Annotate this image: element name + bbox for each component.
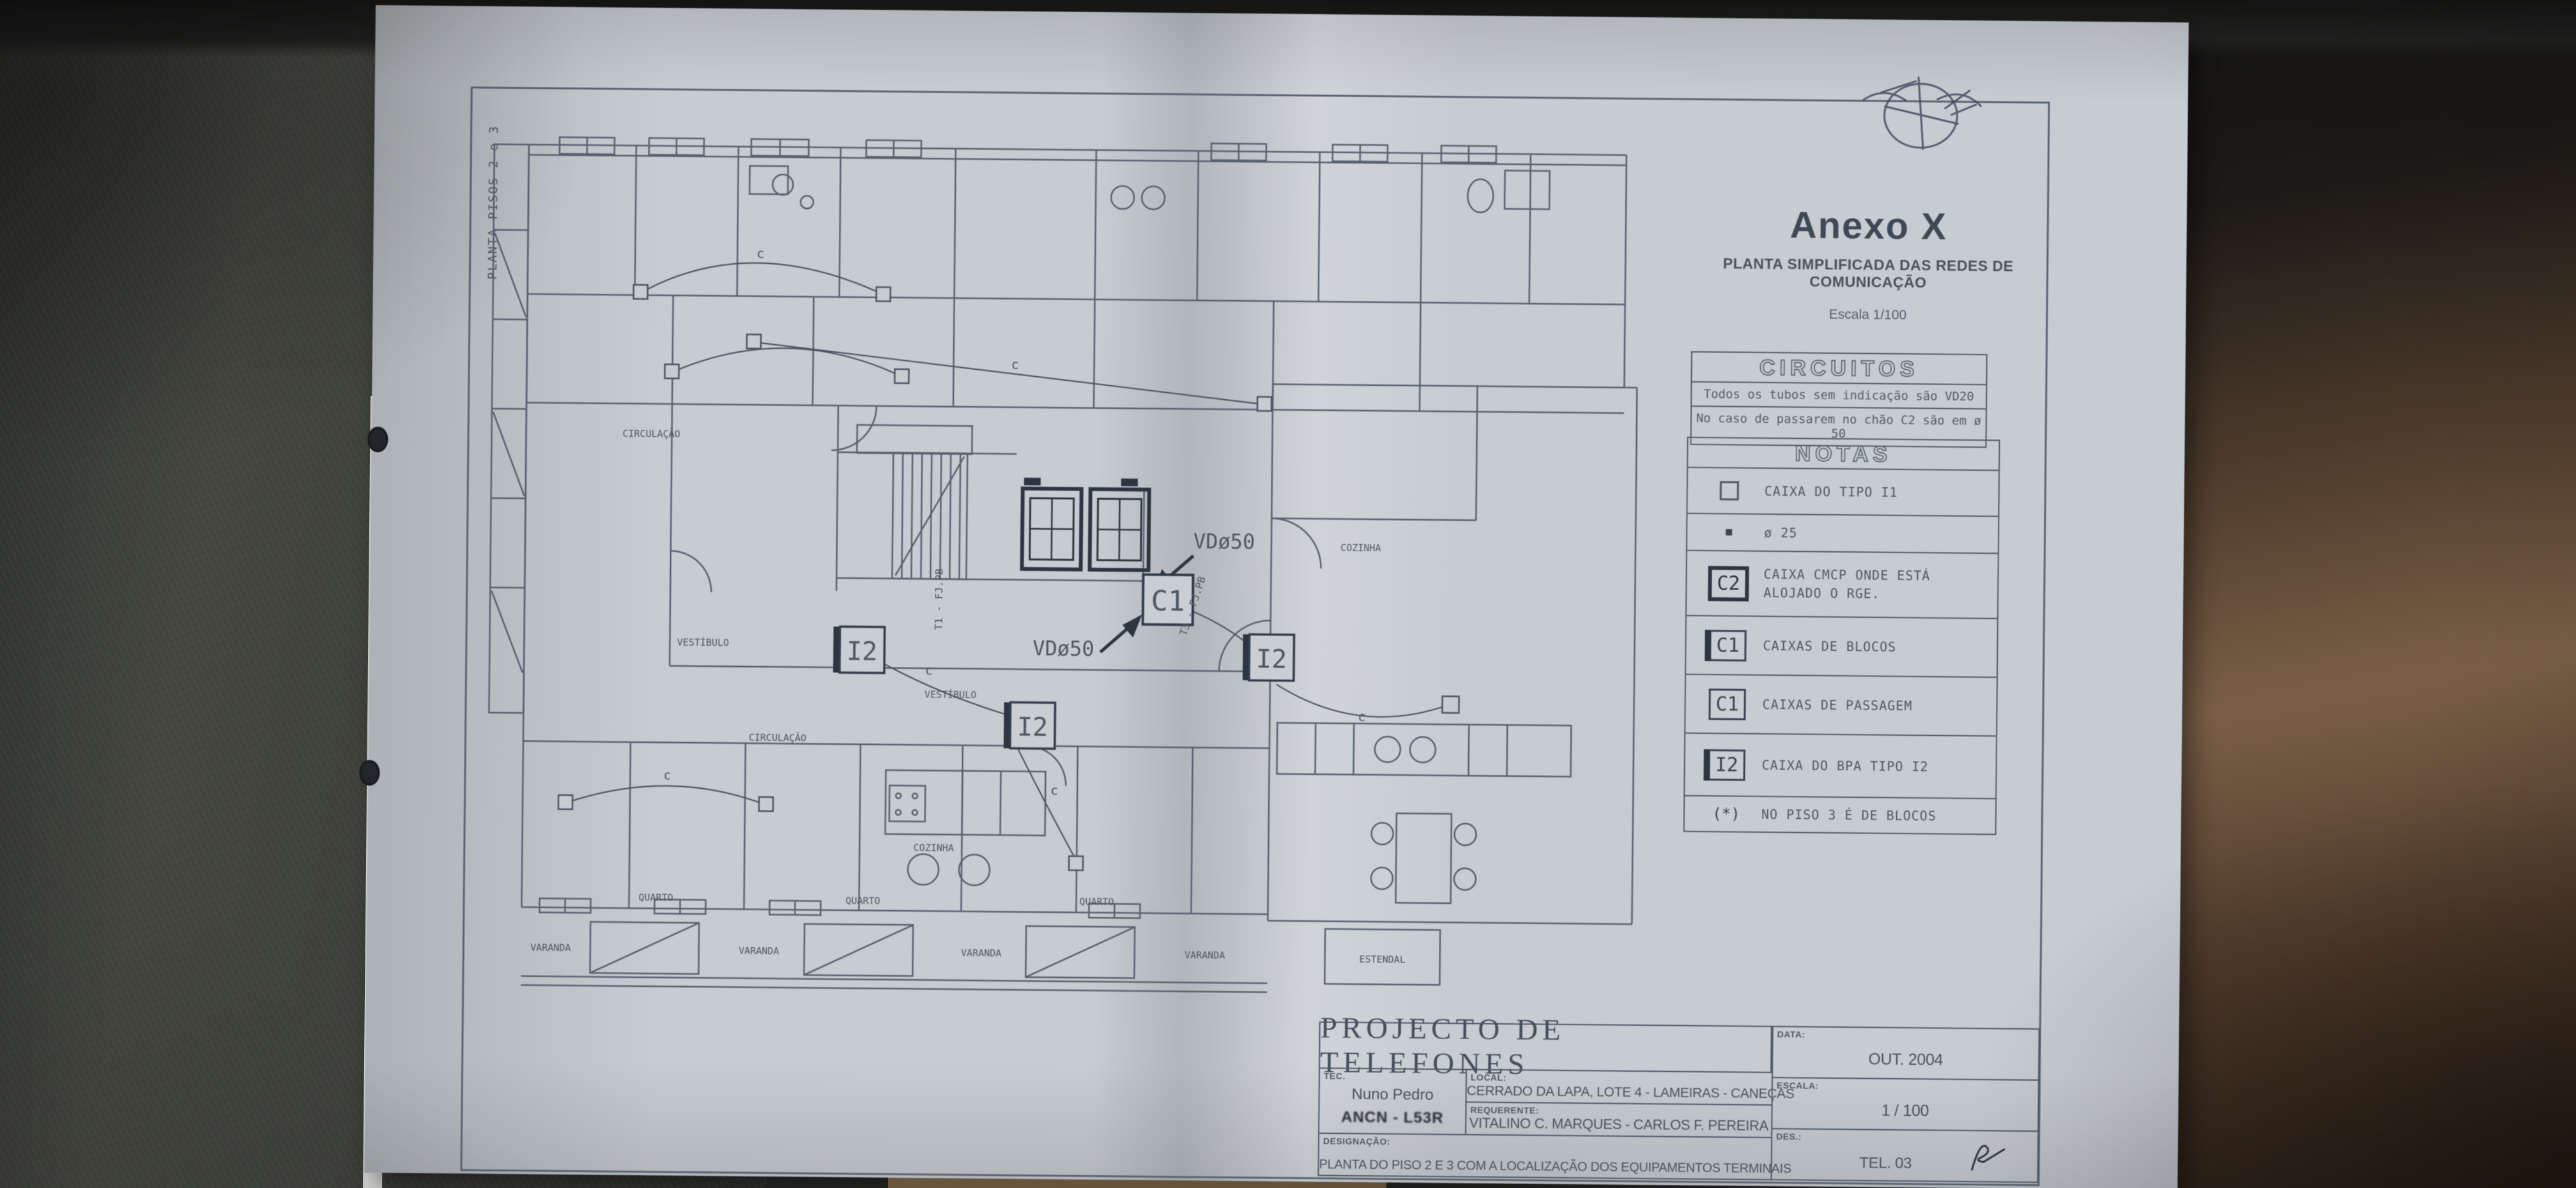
title-block: PROJECTO DE TELEFONES TEC. Nuno Pedro AN…: [1317, 1021, 2039, 1183]
technician-stamp: ANCN - L53R: [1319, 1108, 1465, 1127]
local-value: CERRADO DA LAPA, LOTE 4 - LAMEIRAS - CAN…: [1467, 1083, 1772, 1102]
t1-duct-label: T1 - FJ.PB: [933, 568, 946, 630]
floor-plan: c c c c c c C1 I2: [475, 102, 1665, 1014]
designacao-cell: DESIGNAÇÃO: PLANTA DO PISO 2 E 3 COM A L…: [1317, 1132, 1772, 1180]
legend-row-c1-passagem: C1 CAIXAS DE PASSAGEM: [1685, 675, 1997, 737]
svg-text:CIRCULAÇÃO: CIRCULAÇÃO: [749, 731, 806, 744]
svg-text:VARANDA: VARANDA: [961, 947, 1001, 959]
svg-text:VARANDA: VARANDA: [530, 941, 571, 954]
escala-cell: ESCALA: 1 / 100: [1771, 1077, 2039, 1132]
punch-hole-bottom: [359, 760, 379, 786]
svg-text:VESTÍBULO: VESTÍBULO: [924, 688, 976, 701]
elevator-shafts: [1022, 478, 1149, 570]
annex-subtitle: PLANTA SIMPLIFICADA DAS REDES DE COMUNIC…: [1689, 255, 2047, 293]
requerente-cell: REQUERENTE: VITALINO C. MARQUES - CARLOS…: [1465, 1101, 1772, 1138]
i1-square-symbol: [1720, 481, 1739, 500]
des-cell: DES.: TEL. 03: [1770, 1128, 2039, 1183]
handwritten-initial: [1965, 1136, 2010, 1177]
svg-text:QUARTO: QUARTO: [845, 895, 880, 907]
local-cell: LOCAL: CERRADO DA LAPA, LOTE 4 - LAMEIRA…: [1466, 1069, 1773, 1106]
legend-row-asterisk: (*) NO PISO 3 É DE BLOCOS: [1685, 796, 1995, 834]
c2-box-symbol: C2: [1708, 566, 1749, 602]
svg-text:c: c: [1050, 782, 1058, 798]
dot-symbol: [1726, 529, 1732, 535]
requerente-value: VITALINO C. MARQUES - CARLOS F. PEREIRA: [1466, 1115, 1771, 1134]
svg-text:QUARTO: QUARTO: [1079, 896, 1114, 908]
walls: [486, 137, 1639, 996]
tec-cell: TEC. Nuno Pedro ANCN - L53R: [1318, 1067, 1467, 1135]
annex-title: Anexo X: [1689, 203, 2048, 249]
vd50-upper-label: VDø50: [1193, 529, 1255, 554]
svg-text:QUARTO: QUARTO: [638, 892, 673, 904]
designacao-value: PLANTA DO PISO 2 E 3 COM A LOCALIZAÇÃO D…: [1319, 1157, 1771, 1177]
legend-row-i2: I2 CAIXA DO BPA TIPO I2: [1685, 734, 1996, 800]
box-i2-left-label: I2: [847, 637, 878, 666]
svg-text:COZINHA: COZINHA: [914, 842, 954, 854]
duct-labels: VDø50 VDø50 T1 - FJ.PB T3 - FJ.PB: [932, 526, 1255, 662]
distribution-boxes: C1 I2 I2 I2: [832, 572, 1295, 751]
svg-text:c: c: [663, 767, 671, 782]
legend-row-c2: C2 CAIXA CMCP ONDE ESTÁ ALOJADO O RGE.: [1687, 551, 1998, 620]
svg-text:VARANDA: VARANDA: [739, 945, 779, 957]
photo-of-drawing: PLANTA PISOS 2 e 3: [0, 0, 2576, 1188]
circuitos-note-1: Todos os tubos sem indicação são VD20: [1692, 383, 1986, 409]
notas-title: NOTAS: [1688, 438, 1998, 471]
handwritten-signature: [1844, 45, 2005, 161]
svg-text:VARANDA: VARANDA: [1184, 949, 1225, 961]
legend-row-c1-blocos: C1 CAIXAS DE BLOCOS: [1686, 616, 1997, 678]
vd50-lower-label: VDø50: [1032, 636, 1094, 661]
svg-text:c: c: [1011, 357, 1019, 372]
staircase: [855, 425, 972, 579]
i2-box-symbol: I2: [1708, 749, 1745, 781]
punch-hole-top: [367, 427, 388, 452]
box-c1-label: C1: [1151, 585, 1184, 618]
circuitos-box: CIRCUITOS Todos os tubos sem indicação s…: [1690, 351, 1987, 448]
svg-text:c: c: [1358, 709, 1365, 724]
legend-row-i1: CAIXA DO TIPO I1: [1687, 468, 1998, 517]
c1-bar-box-symbol: C1: [1709, 630, 1747, 662]
svg-text:c: c: [925, 662, 933, 678]
drawing-sheet: PLANTA PISOS 2 e 3: [364, 5, 2188, 1188]
svg-text:c: c: [756, 246, 764, 261]
asterisk-symbol: (*): [1712, 805, 1740, 823]
project-title: PROJECTO DE TELEFONES: [1319, 1021, 1772, 1073]
svg-text:ESTENDAL: ESTENDAL: [1360, 954, 1406, 966]
escala-value: 1 / 100: [1772, 1100, 2037, 1122]
data-cell: DATA: OUT. 2004: [1772, 1026, 2040, 1081]
technician-name: Nuno Pedro: [1320, 1085, 1466, 1104]
svg-text:COZINHA: COZINHA: [1340, 542, 1381, 554]
c1-box-symbol: C1: [1708, 689, 1746, 720]
svg-text:VESTÍBULO: VESTÍBULO: [677, 636, 729, 649]
notas-box: NOTAS CAIXA DO TIPO I1 ø 25 C2 CAIXA CMC…: [1683, 437, 2000, 835]
box-i2-centre-label: I2: [1017, 713, 1048, 742]
legend-row-o25: ø 25: [1687, 514, 1998, 554]
data-value: OUT. 2004: [1773, 1049, 2038, 1070]
box-i2-right-label: I2: [1256, 644, 1287, 674]
svg-text:CIRCULAÇÃO: CIRCULAÇÃO: [622, 427, 680, 440]
circuitos-title: CIRCUITOS: [1692, 353, 1986, 385]
drawing-header: Anexo X PLANTA SIMPLIFICADA DAS REDES DE…: [1689, 203, 2048, 324]
